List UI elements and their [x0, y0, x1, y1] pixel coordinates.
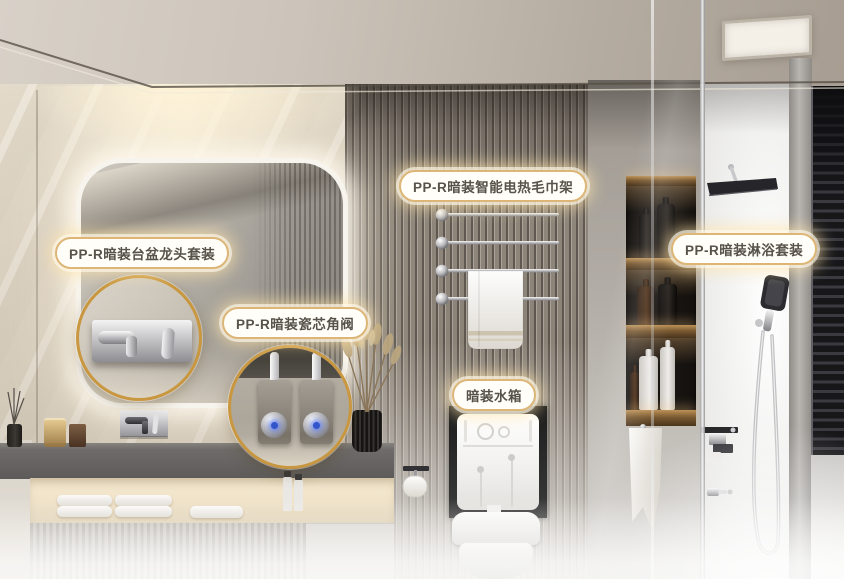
- bathroom-product-scene: PP-R暗装台盆龙头套装 PP-R暗装瓷芯角阀 PP-R暗装智能电热毛巾架 暗装…: [0, 0, 844, 579]
- callout-light-band: [231, 435, 349, 466]
- label-concealed-cistern: 暗装水箱: [452, 379, 536, 411]
- rack-towel: [468, 271, 523, 349]
- label-concealed-shower-set: PP-R暗装淋浴套装: [671, 233, 817, 265]
- callout-light-band: [79, 367, 199, 398]
- label-ceramic-angle-valve: PP-R暗装瓷芯角阀: [222, 307, 368, 339]
- diffuser-reeds: [8, 388, 24, 424]
- rain-shower-head: [707, 164, 778, 196]
- label-smart-heated-towel-rack: PP-R暗装智能电热毛巾架: [399, 170, 587, 202]
- label-basin-faucet-set: PP-R暗装台盆龙头套装: [55, 237, 229, 269]
- valve-knob-led: [303, 412, 329, 438]
- valve-knob-led: [261, 412, 287, 438]
- toilet-paper-holder: [403, 466, 429, 497]
- basin-faucet: [120, 410, 168, 439]
- shower-floor-glow: [540, 400, 844, 579]
- ceiling-junction-line: [0, 40, 844, 93]
- callout-dark-band: [231, 348, 349, 378]
- faucet-spout-end: [126, 336, 137, 357]
- callout-basin-faucet: [76, 275, 202, 401]
- faucet-lever: [161, 328, 175, 360]
- callout-angle-valve: [228, 345, 352, 469]
